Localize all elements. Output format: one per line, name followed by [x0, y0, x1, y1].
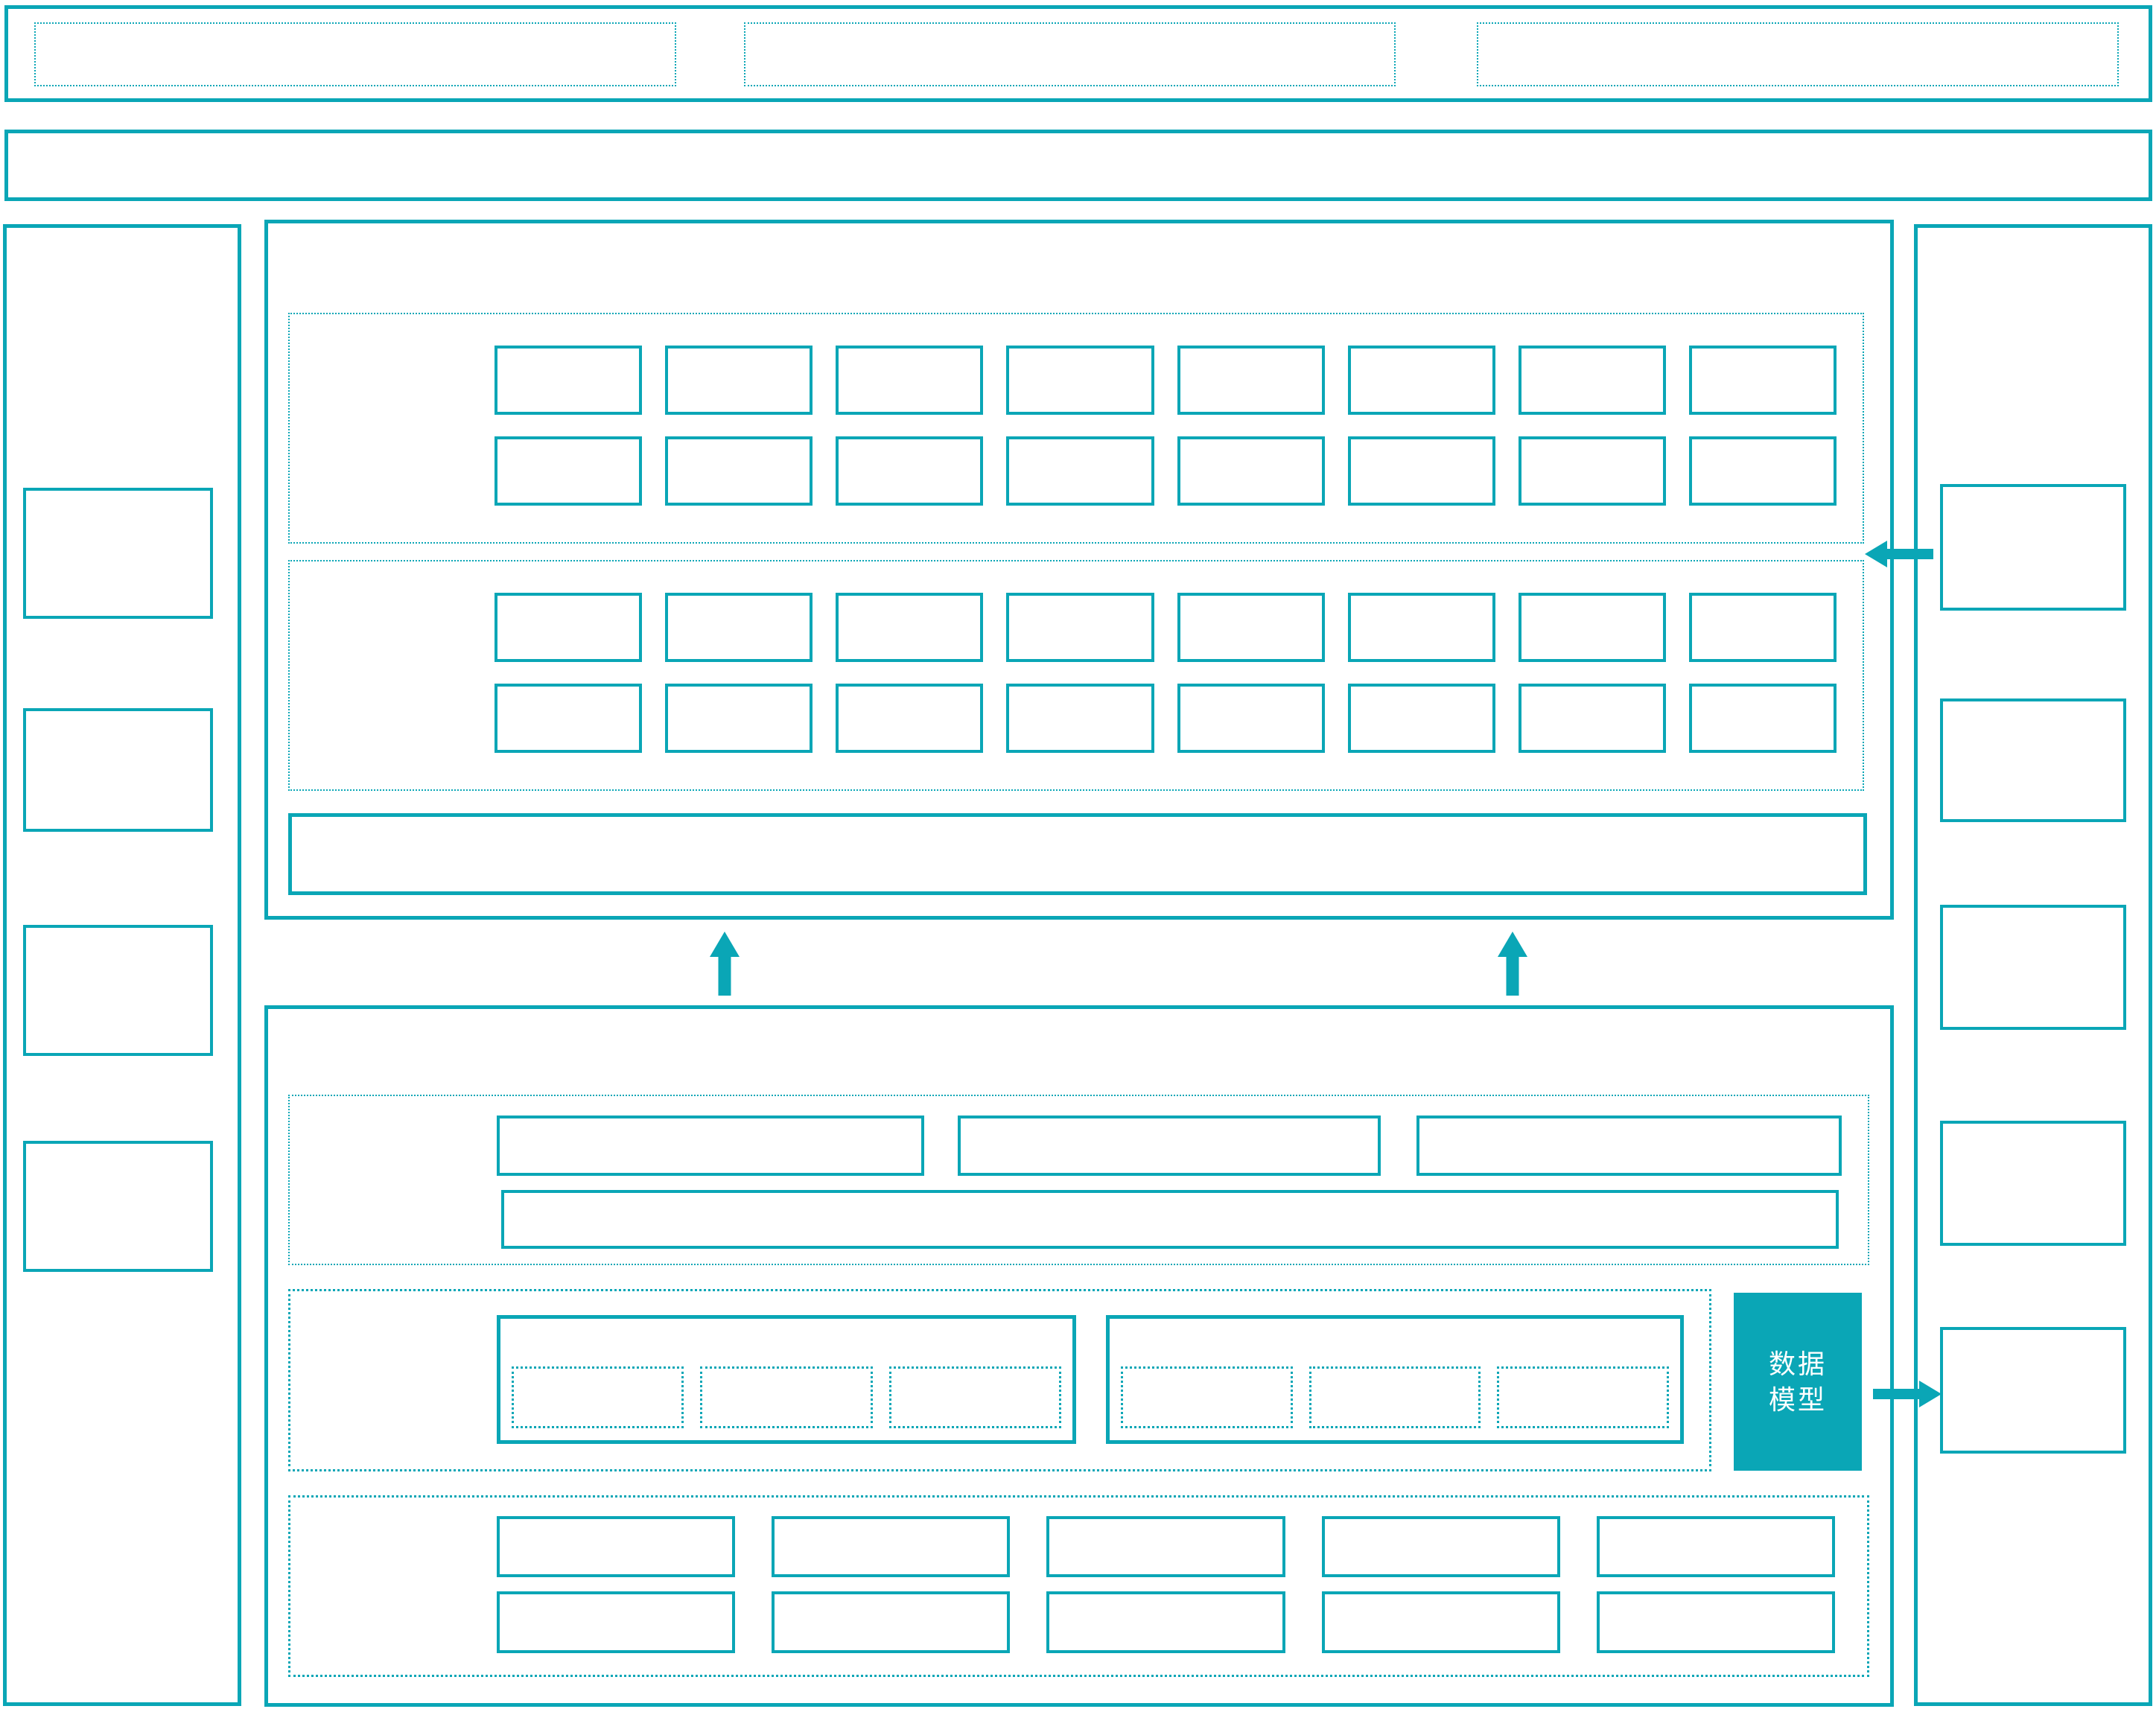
upper-grid-1	[495, 346, 1837, 506]
right-panel-box-1	[1940, 484, 2126, 611]
upper-grid-section-1	[288, 313, 1864, 544]
module-box	[1177, 436, 1325, 506]
left-arrow-icon	[1865, 539, 1933, 569]
lower-grid-section	[288, 1495, 1869, 1677]
lower-grid	[497, 1516, 1835, 1653]
module-box	[495, 436, 642, 506]
module-box	[1689, 436, 1837, 506]
module-box	[1006, 593, 1154, 662]
module-box	[1322, 1591, 1560, 1653]
up-arrow-icon-1	[708, 932, 741, 996]
upper-module	[264, 220, 1894, 920]
up-arrow-icon-2	[1496, 932, 1529, 996]
right-panel-box-2	[1940, 698, 2126, 822]
lower-row-wide-bar	[501, 1190, 1839, 1249]
module-box	[836, 684, 983, 753]
module-box	[1177, 346, 1325, 415]
module-box	[1519, 436, 1666, 506]
module-box	[665, 684, 813, 753]
right-panel	[1914, 224, 2152, 1706]
right-arrow-icon	[1873, 1379, 1942, 1409]
left-panel-box-1	[23, 488, 213, 619]
module-box	[1519, 346, 1666, 415]
module-box	[836, 593, 983, 662]
right-panel-box-4	[1940, 1121, 2126, 1246]
group-slot	[700, 1366, 872, 1428]
left-panel	[3, 224, 241, 1706]
module-box	[1689, 684, 1837, 753]
architecture-diagram: 数据模型	[0, 0, 2156, 1709]
module-box	[1006, 684, 1154, 753]
module-box	[665, 593, 813, 662]
module-box	[836, 436, 983, 506]
lower-module: 数据模型	[264, 1005, 1894, 1707]
upper-grid-2	[495, 593, 1837, 753]
module-box	[1177, 684, 1325, 753]
right-panel-box-5	[1940, 1327, 2126, 1454]
module-box	[772, 1591, 1010, 1653]
group-box-1	[497, 1315, 1076, 1444]
module-box	[1348, 684, 1495, 753]
module-box	[1689, 593, 1837, 662]
module-box	[1348, 593, 1495, 662]
left-panel-box-4	[23, 1141, 213, 1272]
module-box	[1046, 1591, 1285, 1653]
lower-row-box-2	[958, 1116, 1381, 1176]
module-box	[1006, 346, 1154, 415]
module-box	[1177, 593, 1325, 662]
upper-grid-section-2	[288, 560, 1864, 791]
top-bar-slot-2	[744, 22, 1396, 86]
lower-row-section	[288, 1095, 1869, 1265]
module-box	[1322, 1516, 1560, 1577]
data-model-box: 数据模型	[1734, 1293, 1862, 1471]
top-bar	[4, 5, 2152, 102]
top-bar-slot-3	[1477, 22, 2119, 86]
upper-wide-bar	[288, 813, 1867, 895]
module-box	[1348, 346, 1495, 415]
data-model-label: 数据模型	[1764, 1346, 1831, 1417]
module-box	[495, 684, 642, 753]
left-panel-box-2	[23, 708, 213, 832]
module-box	[1348, 436, 1495, 506]
module-box	[497, 1591, 735, 1653]
left-panel-box-3	[23, 925, 213, 1056]
module-box	[1046, 1516, 1285, 1577]
module-box	[1597, 1516, 1835, 1577]
module-box	[665, 436, 813, 506]
module-box	[1689, 346, 1837, 415]
ribbon-bar	[4, 130, 2152, 201]
module-box	[497, 1516, 735, 1577]
module-box	[1006, 436, 1154, 506]
group-slot	[1497, 1366, 1669, 1428]
top-bar-slot-1	[34, 22, 676, 86]
module-box	[1597, 1591, 1835, 1653]
lower-row-box-1	[497, 1116, 924, 1176]
module-box	[665, 346, 813, 415]
module-box	[772, 1516, 1010, 1577]
module-box	[836, 346, 983, 415]
group-slot	[512, 1366, 684, 1428]
right-panel-box-3	[1940, 905, 2126, 1030]
group-slot	[1309, 1366, 1481, 1428]
group-slot	[1121, 1366, 1293, 1428]
group-box-2	[1106, 1315, 1684, 1444]
module-box	[1519, 593, 1666, 662]
module-box	[495, 346, 642, 415]
module-box	[1519, 684, 1666, 753]
lower-group-section	[288, 1289, 1711, 1471]
module-box	[495, 593, 642, 662]
group-slot	[889, 1366, 1061, 1428]
lower-row-box-3	[1416, 1116, 1842, 1176]
